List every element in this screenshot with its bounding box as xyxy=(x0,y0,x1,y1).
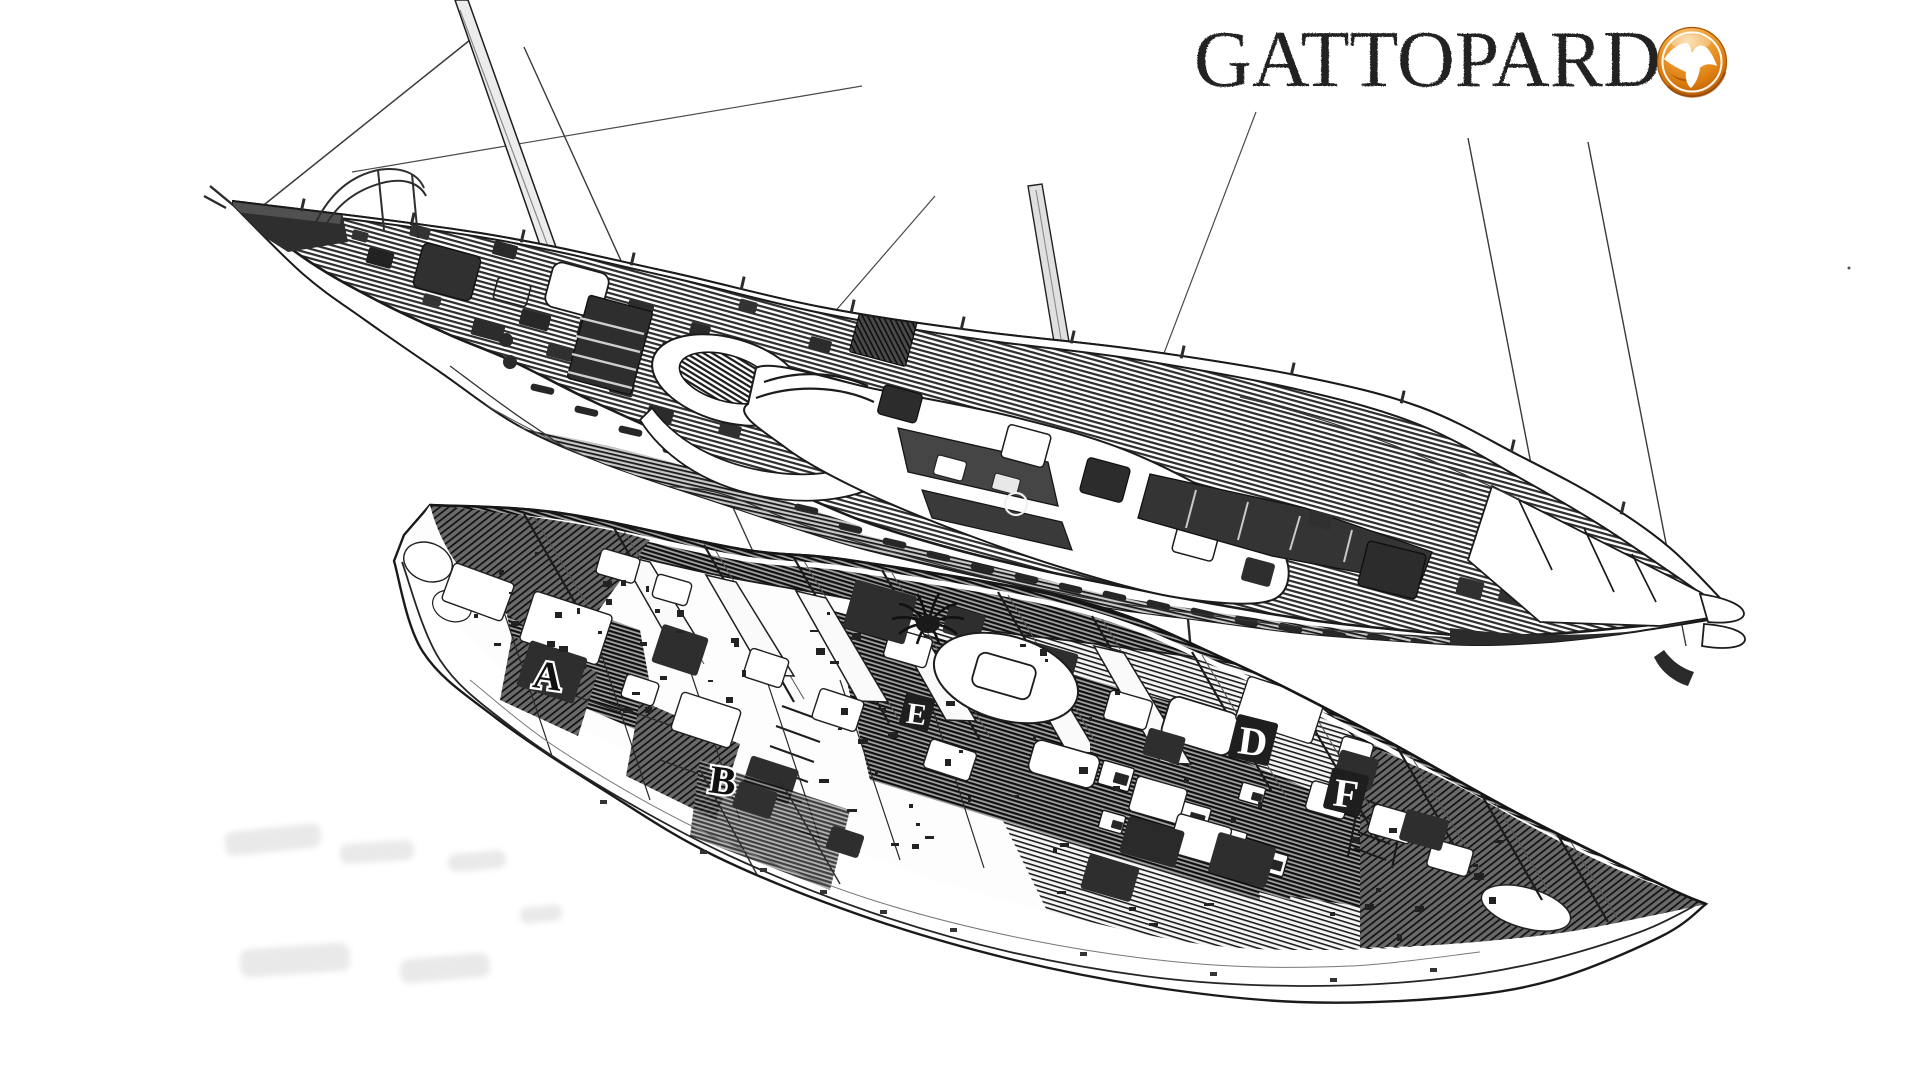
svg-text:GATTOPARDO: GATTOPARDO xyxy=(1194,16,1719,104)
svg-text:D: D xyxy=(1235,717,1270,766)
